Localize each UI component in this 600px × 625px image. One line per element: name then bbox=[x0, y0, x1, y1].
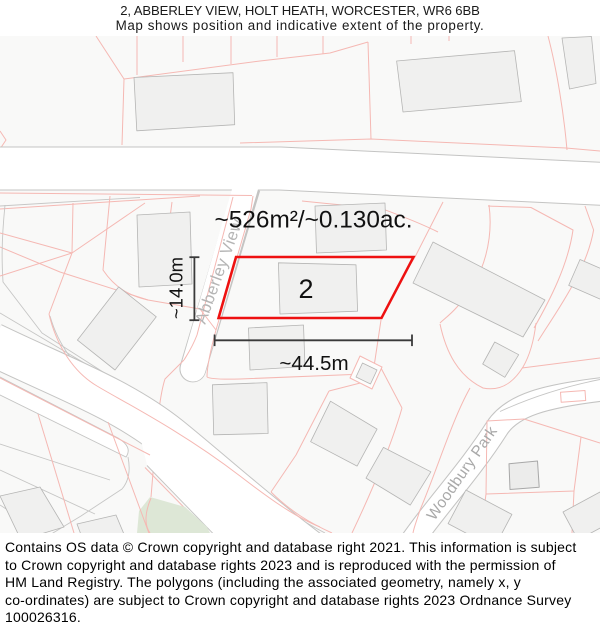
svg-text:~526m²/~0.130ac.: ~526m²/~0.130ac. bbox=[215, 207, 413, 234]
svg-text:~14.0m: ~14.0m bbox=[165, 257, 186, 319]
svg-text:2: 2 bbox=[298, 274, 313, 304]
svg-text:~44.5m: ~44.5m bbox=[279, 352, 348, 375]
